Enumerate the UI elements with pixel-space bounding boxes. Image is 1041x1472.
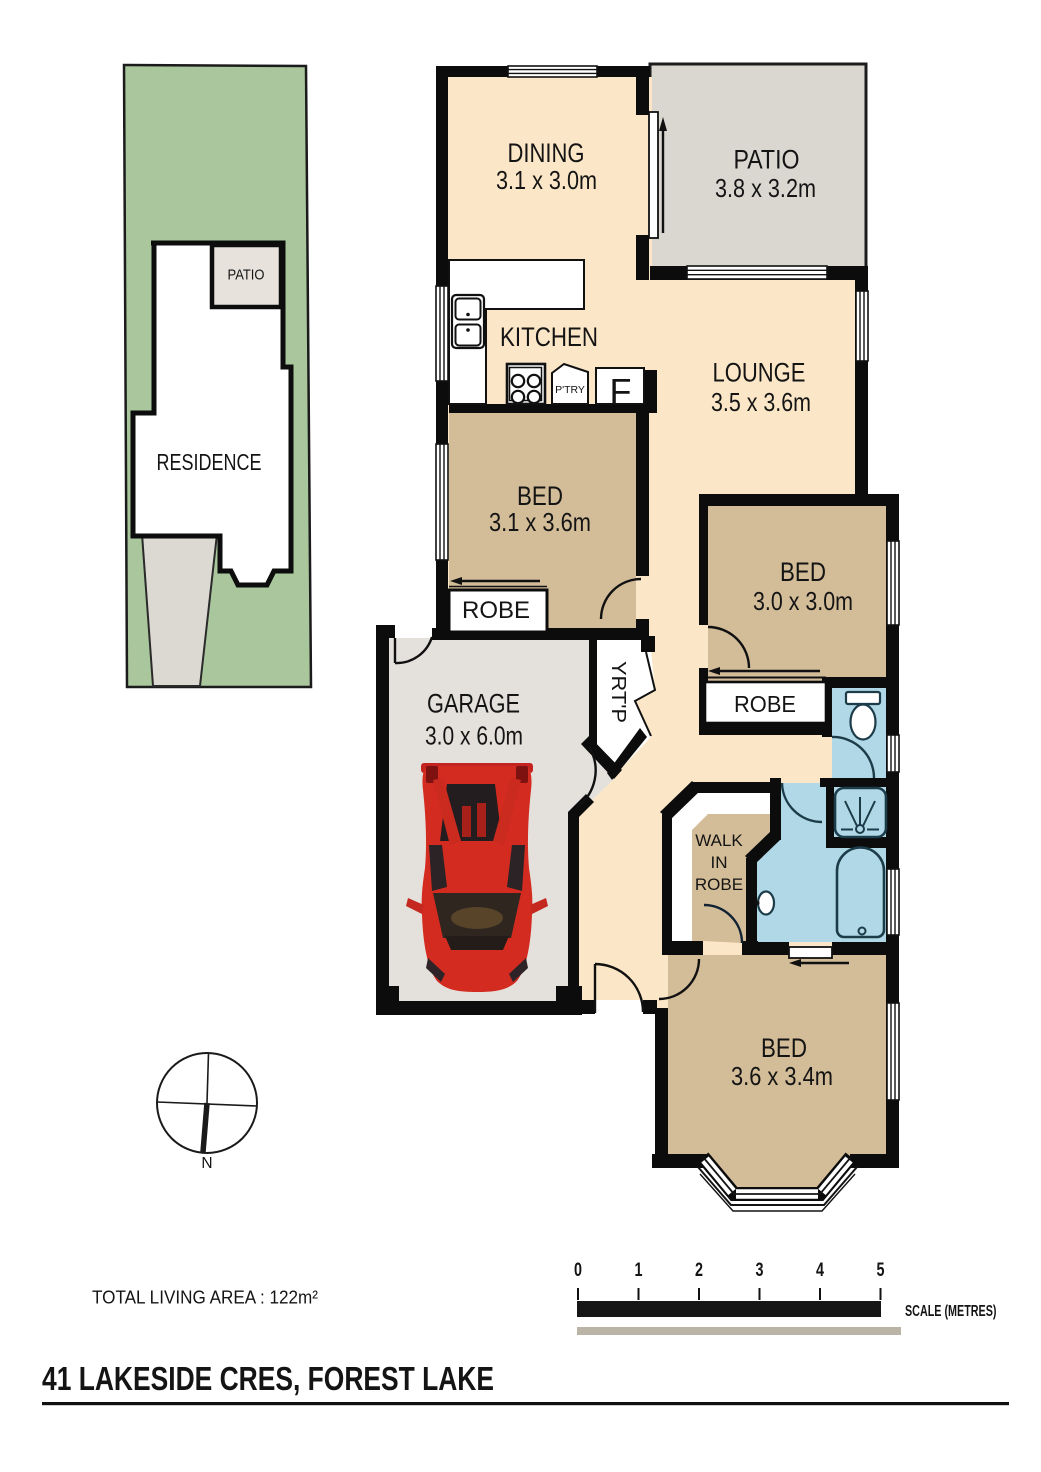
svg-text:IN: IN: [711, 853, 728, 872]
svg-text:F: F: [610, 371, 632, 412]
svg-text:ROBE: ROBE: [734, 691, 796, 717]
svg-text:ROBE: ROBE: [462, 597, 530, 624]
svg-text:PATIO: PATIO: [228, 267, 265, 284]
svg-text:PATIO: PATIO: [734, 145, 800, 175]
svg-text:GARAGE: GARAGE: [427, 689, 520, 719]
svg-text:N: N: [201, 1155, 212, 1172]
svg-text:KITCHEN: KITCHEN: [500, 322, 598, 352]
svg-text:1: 1: [635, 1260, 643, 1281]
svg-text:WALK: WALK: [695, 831, 743, 850]
svg-text:2: 2: [695, 1260, 703, 1281]
svg-text:5: 5: [877, 1260, 885, 1281]
svg-text:P'TRY: P'TRY: [555, 384, 585, 396]
svg-text:LOUNGE: LOUNGE: [713, 358, 806, 388]
svg-text:BED: BED: [761, 1033, 807, 1063]
svg-text:SCALE (METRES): SCALE (METRES): [905, 1303, 997, 1320]
svg-text:3.5 x 3.6m: 3.5 x 3.6m: [711, 387, 811, 417]
svg-text:RESIDENCE: RESIDENCE: [157, 449, 262, 475]
svg-text:3.1 x 3.6m: 3.1 x 3.6m: [489, 507, 591, 537]
svg-text:4: 4: [816, 1260, 824, 1281]
svg-text:DINING: DINING: [508, 138, 585, 168]
svg-text:3.0 x 3.0m: 3.0 x 3.0m: [753, 586, 853, 616]
svg-text:3: 3: [756, 1260, 764, 1281]
svg-text:41 LAKESIDE CRES, FOREST LAKE: 41 LAKESIDE CRES, FOREST LAKE: [42, 1360, 494, 1397]
svg-text:ROBE: ROBE: [695, 875, 743, 894]
svg-text:3.0 x 6.0m: 3.0 x 6.0m: [425, 721, 523, 751]
svg-text:YRT'P: YRT'P: [607, 661, 629, 723]
svg-text:3.6 x 3.4m: 3.6 x 3.4m: [731, 1061, 833, 1091]
svg-text:0: 0: [574, 1260, 582, 1281]
svg-text:TOTAL LIVING AREA : 122m²: TOTAL LIVING AREA : 122m²: [92, 1287, 318, 1308]
svg-text:3.8 x 3.2m: 3.8 x 3.2m: [715, 173, 816, 203]
svg-text:3.1 x 3.0m: 3.1 x 3.0m: [496, 165, 597, 195]
svg-text:BED: BED: [780, 557, 826, 587]
